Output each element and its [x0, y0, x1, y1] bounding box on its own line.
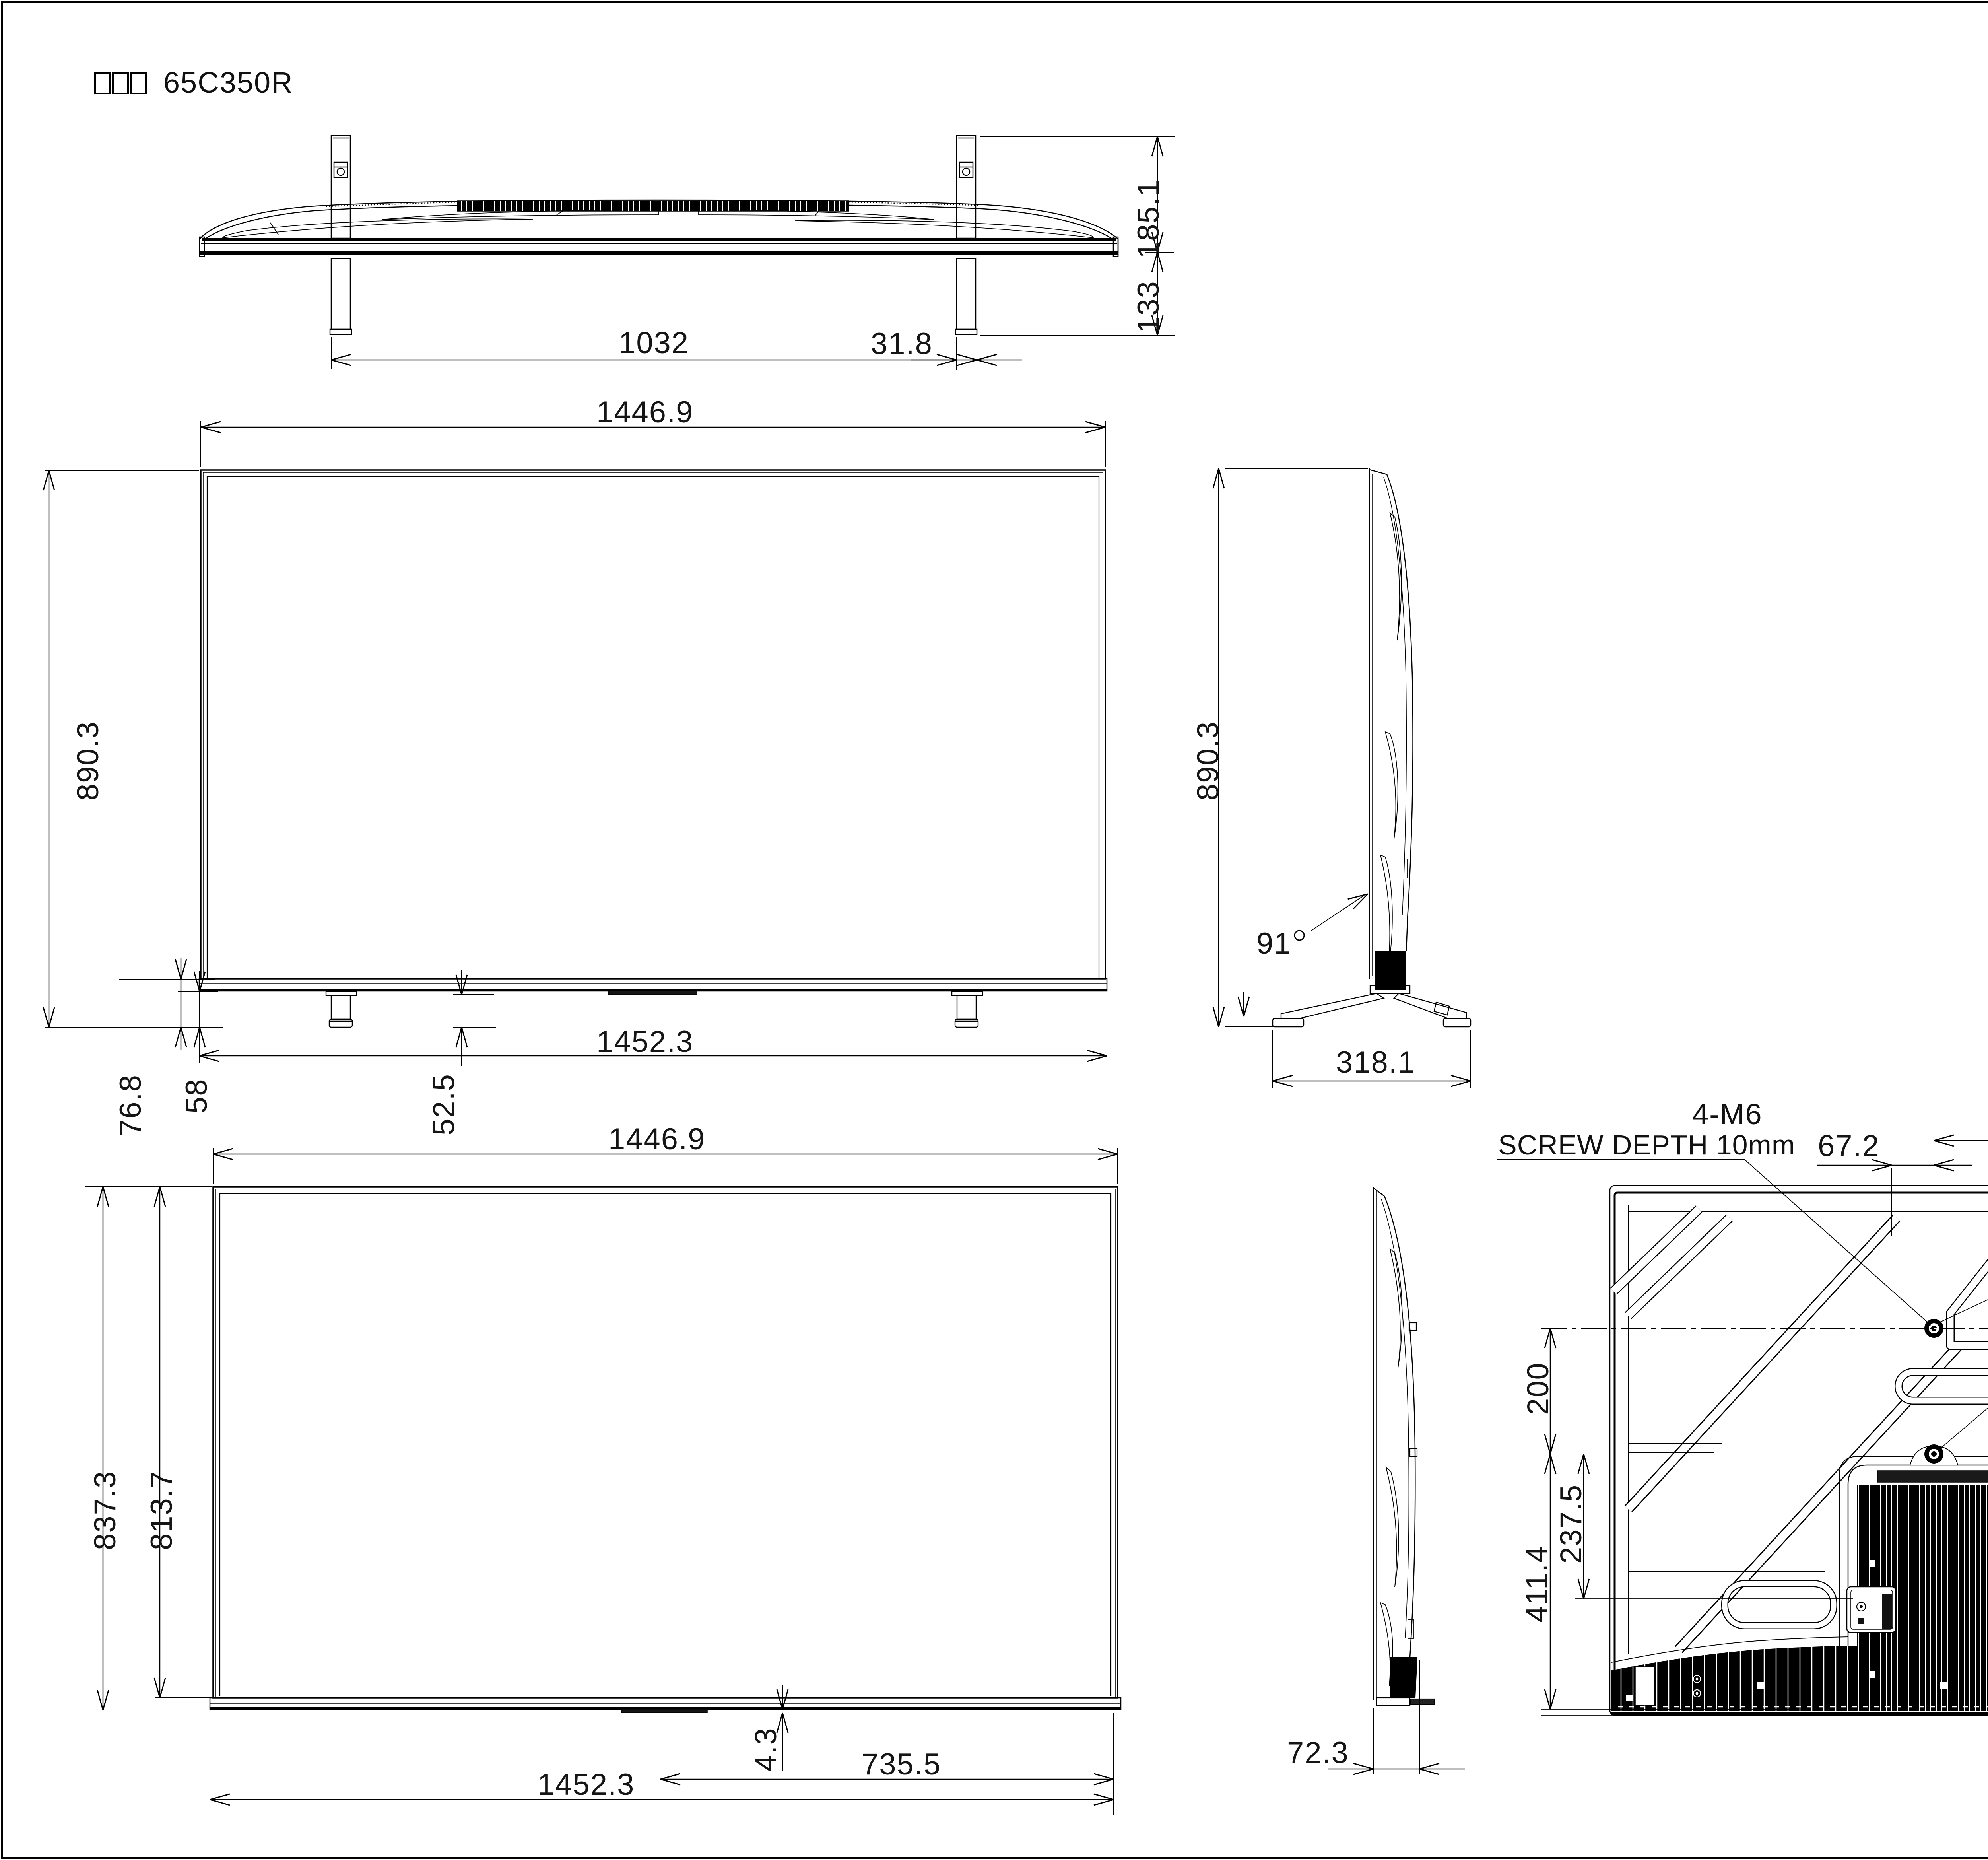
svg-text:237.5: 237.5 — [1554, 1484, 1588, 1564]
svg-text:SCREW DEPTH 10mm: SCREW DEPTH 10mm — [1498, 1129, 1795, 1160]
svg-text:837.3: 837.3 — [88, 1471, 122, 1550]
svg-text:735.5: 735.5 — [862, 1747, 941, 1781]
svg-text:65C350R: 65C350R — [163, 66, 293, 99]
svg-text:411.4: 411.4 — [1520, 1545, 1554, 1623]
svg-text:67.2: 67.2 — [1818, 1129, 1880, 1163]
svg-text:1446.9: 1446.9 — [608, 1122, 705, 1156]
svg-text:318.1: 318.1 — [1336, 1046, 1415, 1079]
svg-text:4-M6: 4-M6 — [1692, 1098, 1763, 1131]
svg-text:890.3: 890.3 — [71, 721, 105, 801]
svg-text:1446.9: 1446.9 — [596, 395, 693, 429]
svg-text:1452.3: 1452.3 — [538, 1768, 635, 1802]
svg-text:52.5: 52.5 — [427, 1073, 461, 1135]
svg-text:91: 91 — [1256, 927, 1292, 960]
svg-text:72.3: 72.3 — [1287, 1736, 1349, 1770]
svg-text:4.3: 4.3 — [749, 1727, 783, 1772]
svg-text:1032: 1032 — [619, 326, 689, 360]
svg-text:890.3: 890.3 — [1191, 721, 1225, 801]
svg-text:133: 133 — [1132, 280, 1165, 333]
svg-text:31.8: 31.8 — [871, 327, 933, 361]
svg-text:76.8: 76.8 — [114, 1074, 148, 1136]
svg-text:813.7: 813.7 — [145, 1471, 179, 1550]
svg-text:185.1: 185.1 — [1132, 179, 1165, 258]
svg-text:1452.3: 1452.3 — [596, 1025, 693, 1059]
svg-text:200: 200 — [1521, 1362, 1555, 1415]
svg-text:58: 58 — [180, 1078, 214, 1114]
